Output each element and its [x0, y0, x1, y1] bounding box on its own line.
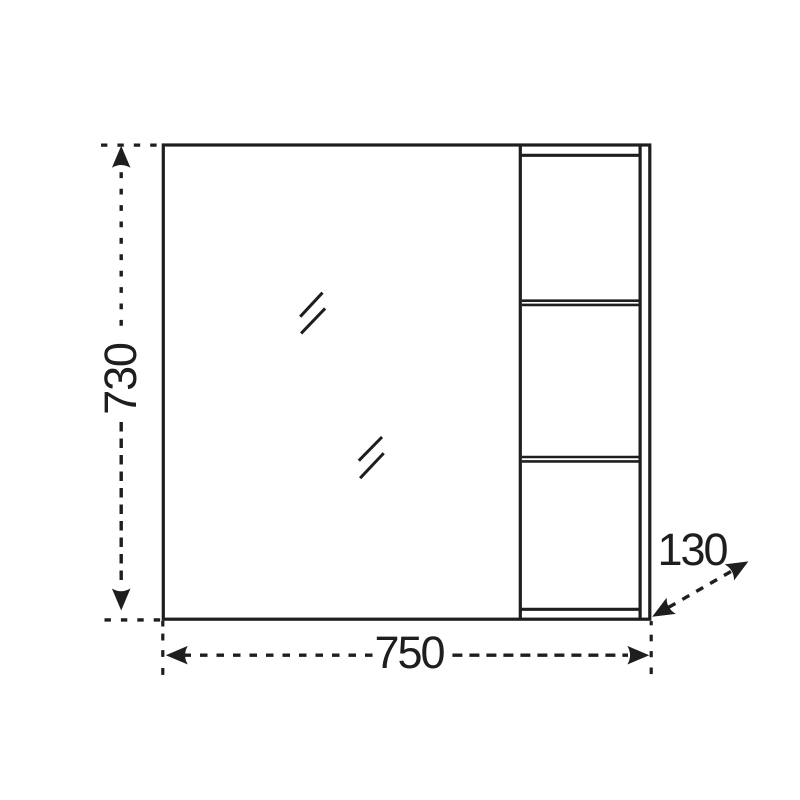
svg-text:750: 750: [374, 627, 444, 678]
svg-text:730: 730: [95, 343, 146, 415]
svg-text:130: 130: [657, 524, 727, 575]
